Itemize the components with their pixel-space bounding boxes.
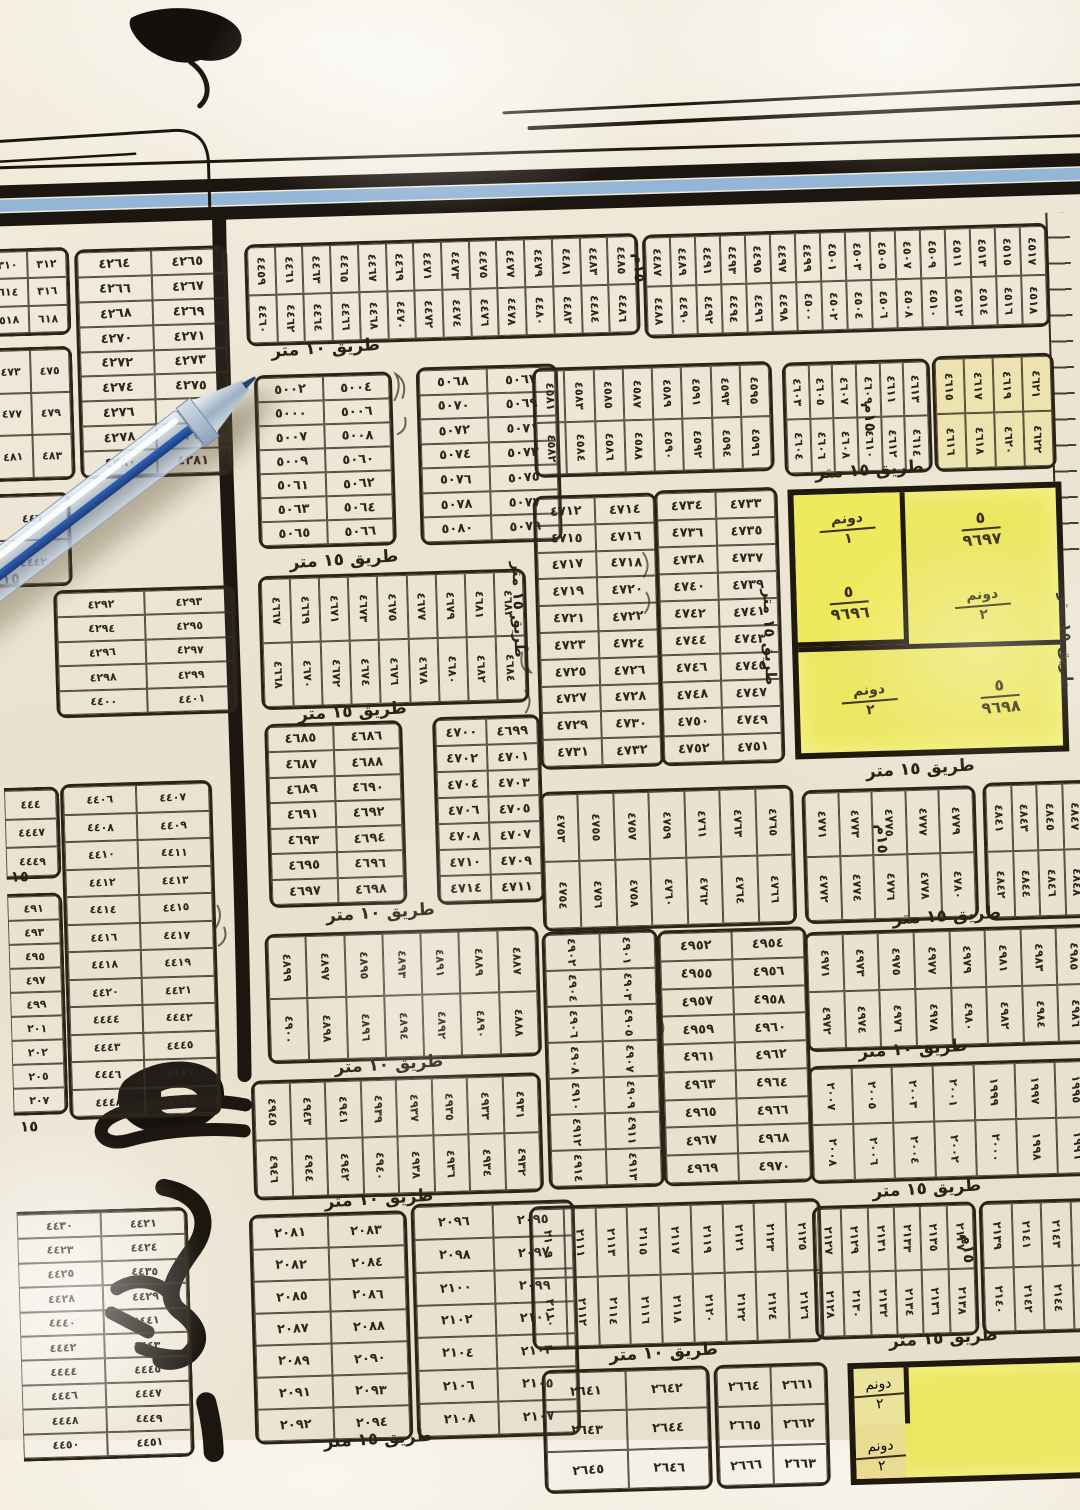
plot-number-text: ٤٧٠٣: [498, 775, 530, 790]
plot-number: ٤٢٧٤: [81, 375, 155, 402]
plot-number: ٤٧٤٠: [659, 573, 719, 602]
plot-number-text: ٤٦٧٠: [300, 660, 315, 688]
plot-number: ٤٥٩٠: [653, 419, 684, 472]
plot-number-text: ٢١٢٦: [797, 1291, 812, 1319]
plot-number: ٤٥١٨: [1021, 275, 1047, 325]
plot-number-text: ٥٠٠٩: [276, 453, 308, 469]
plot-number-text: ٤٩١٤: [572, 1154, 587, 1182]
plot-number-text: ٤٩٠٢: [565, 938, 580, 966]
plot-number-text: ٢١٠٨: [443, 1411, 475, 1427]
plot-number-text: ٢٠٨١: [274, 1224, 306, 1240]
plot-number: ٥٠٦٢: [326, 470, 393, 496]
plot-number-text: ١٩٩٦: [1070, 1131, 1080, 1159]
plot-number-text: ٢٦٦٤: [728, 1379, 760, 1395]
plot-number-text: ٤٩٥٥: [681, 967, 713, 982]
plot-number: ١٩٩٦: [1056, 1117, 1080, 1174]
plot-number: ٤٧١٤: [595, 496, 655, 525]
plot-number: ٥٠٧٦: [422, 467, 491, 494]
plot-number-text: ٤٩٦٣: [684, 1077, 716, 1093]
plot-number-text: ٤٦٧١: [327, 595, 342, 623]
plot-number: ٤٧٢٢: [598, 603, 658, 632]
plot-number-text: ٢٠٩٢: [280, 1416, 312, 1432]
plot-number: ٤٤٧٠: [387, 291, 416, 340]
plot-number: ٤٤٨٣: [579, 237, 608, 286]
plot-number: ٤٥٠٤: [846, 280, 872, 330]
plot-number-text: ٤٢٩٧: [176, 644, 203, 657]
plot-number: ٤٦٦٨: [263, 642, 294, 707]
plot-number: ٤٥١٢: [946, 277, 972, 327]
plot-number: ٤٤٨٤: [581, 285, 610, 334]
plot-number: ٤٨٤٨: [1064, 849, 1080, 916]
plot-number: ٤٤١٢: [65, 868, 139, 898]
plot-number-text: ٤٦٦٧: [269, 597, 284, 625]
plot-number: ٤٧٧٣: [838, 791, 873, 856]
plot-number: ٤٧٦٢: [686, 857, 723, 925]
plot-number: ٤٦٧٨: [408, 638, 439, 703]
plot-number-text: ٢٠٧: [29, 1094, 49, 1107]
plot-number: ٤٤٤٨: [22, 1407, 107, 1434]
plot-block: ٤٧٣٤٧٥٤٧٧٤٧٩٤٨١٤٨٣: [0, 346, 76, 482]
plot-number: ٤٨٤١: [985, 785, 1012, 852]
plot-number: ٤٧٥٠: [663, 708, 723, 737]
plot-number: ٤٢٦٨: [79, 300, 153, 327]
plot-number: ٤٦٠٣: [785, 365, 810, 420]
plot-number-text: ٥٠٨٠: [441, 521, 473, 537]
plot-number-text: ٤٨٩٧: [318, 952, 333, 980]
plot-number-text: ٤٨٩٣: [395, 950, 409, 978]
plot-number-text: ٤٦٦٩: [298, 596, 313, 624]
parcel-number-fraction: ٥ ٩٦٩٨: [979, 674, 1021, 719]
plot-number: ٤٧٠٥: [488, 795, 540, 823]
plot-number: ٤٤٩٠: [671, 285, 697, 335]
plot-number: ٥١٨: [0, 306, 29, 334]
plot-number: ٥٠٠٠: [258, 400, 325, 426]
plot-number: ٤٧١٨: [596, 549, 656, 578]
plot-number-text: ٤٧٥١: [736, 739, 769, 756]
plot-number: ٤٩٤٢: [326, 1137, 363, 1195]
plot-number-text: ٤٦٢١: [1030, 370, 1044, 398]
plot-block: ٤٤٥٩٤٤٦١٤٤٦٣٤٤٦٥٤٤٦٧٤٤٦٩٤٤٧١٤٤٧٣٤٤٧٥٤٤٧٧…: [244, 233, 641, 347]
plot-number-text: ٤٢٩٥: [175, 619, 202, 633]
plot-number: ٤٤٢٤: [101, 1234, 186, 1261]
plot-number-text: ٢٠٨٦: [352, 1287, 384, 1302]
plot-number: ٤٥٠١: [820, 232, 846, 282]
plot-number: ٤٧١٠: [439, 849, 491, 877]
plot-number-text: ٤٤٦٢: [284, 304, 298, 332]
plot-number: ٢٦٤٣: [546, 1410, 628, 1452]
plot-number-text: ٤٨٤٦: [1045, 869, 1060, 897]
plot-number: ٤٤٨٧: [645, 237, 671, 287]
plot-number-text: ٥٠٧٦: [440, 472, 472, 487]
plot-number-text: ٤٧٢١: [553, 611, 585, 626]
plot-number: ٤٢٦٦: [78, 275, 152, 302]
plot-number: ٥٠٦٤: [326, 494, 393, 520]
plot-number: ٤٩٠٣: [601, 968, 657, 1006]
parcel-number-fraction: ٥ ٩٦٩٦: [829, 580, 871, 625]
parcel-area-fraction: دونم ٢: [853, 1374, 907, 1426]
plot-number: ٤٧٦١: [684, 790, 721, 858]
plot-number-text: ٤٩٥٢: [680, 938, 712, 954]
plot-number: ٤٦٩٨: [338, 876, 405, 903]
plot-number: ٤٥١٧: [1020, 226, 1046, 276]
plot-number: ٤٩٥٦: [732, 957, 805, 987]
plot-number: ٤٥٨١: [535, 370, 566, 423]
plot-number: ٤٤٤٣: [104, 1332, 189, 1359]
plot-number-text: ٤٤٤٨: [51, 1414, 78, 1428]
plot-number-text: ٤٦١٢: [886, 429, 901, 457]
plot-number: ٢٦٦٢: [772, 1404, 827, 1445]
plot-number-text: ٤٢٧٠: [100, 330, 132, 346]
plot-number: ٤٤٩٣: [720, 235, 746, 285]
plot-number: ٤٨٤٤: [1013, 850, 1040, 917]
plot-number: ٢٠٨٨: [331, 1309, 408, 1343]
plot-number: ٥٠٠٧: [258, 424, 325, 450]
plot-number: ٣١٢: [27, 250, 67, 278]
plot-number: ٤٩٠٨: [548, 1041, 604, 1079]
plot-number: ٤٧١٤: [440, 875, 492, 903]
plot-block: ٢٦٤١٢٦٤٢٢٦٤٣٢٦٤٤٢٦٤٥٢٦٤٦: [541, 1365, 713, 1494]
plot-number-text: ٤٢٧٤: [102, 380, 134, 396]
plot-block: ٢١٣٩٢١٤١٢١٤٣٢١٤٥٢١٤٠٢١٤٢٢١٤٤٢١٤٦: [979, 1198, 1080, 1336]
plot-number-text: ٤٧٤٩: [736, 713, 768, 728]
plot-number: ٢١٠٠: [415, 1270, 495, 1305]
road-width-marker: ١٥م: [861, 402, 880, 432]
plot-number-text: ٢١٣٨: [955, 1287, 969, 1315]
plot-number-text: ٤٤٤: [20, 798, 41, 812]
plot-number-text: ٤٦٨٢: [474, 654, 489, 682]
plot-number-text: ٤٦٨١: [473, 591, 487, 619]
plot-number: ٤٧٢١: [539, 604, 599, 633]
plot-number: ٢١٤٠: [984, 1267, 1015, 1332]
parcel-area-fraction: دونم ٢: [840, 680, 899, 721]
plot-number-text: ٤٦٩٣: [288, 833, 320, 848]
plot-number-text: ٤٩٣٧: [407, 1093, 422, 1121]
plot-number-text: ٤٤٤٢: [49, 1341, 76, 1355]
plot-number-text: ٤٧٤٨: [676, 686, 709, 703]
plot-number: ٤٢٩٣: [144, 588, 233, 615]
plot-number: ٤٦٩٦: [337, 850, 404, 877]
plot-number-text: ٢١٣٢: [876, 1289, 891, 1317]
plot-number-text: ٤٧٠٨: [448, 829, 480, 844]
plot-number: ٢٠٨٦: [330, 1277, 407, 1311]
plot-number-text: ٤٤٤٨: [95, 1095, 122, 1109]
plot-number: ٤٩٠٢: [545, 933, 601, 971]
plot-number: ٤٤١٧: [140, 920, 214, 950]
plot-number-text: ٤٤٤٩: [168, 1094, 195, 1107]
plot-number: ٤٩٣٧: [396, 1078, 433, 1136]
plot-number-text: ٤٩٦٩: [686, 1160, 718, 1176]
plot-number-text: ٤٧٧٣: [848, 809, 863, 837]
plot-number: ١٩٩٥: [1055, 1061, 1080, 1118]
highlighted-parcel-9696: دونم ١ ٥ ٩٦٩٦: [794, 492, 909, 647]
plot-number-text: ٤٤٨٦: [616, 294, 630, 322]
plot-number: ٥٠٠٨: [324, 422, 391, 448]
plot-number-text: ٤٤٥٠: [52, 1438, 79, 1452]
plot-number: ٤٤٤٧: [5, 818, 58, 848]
plot-number: ٤٦٨٦: [333, 723, 400, 750]
plot-number-text: ٢١٢٨: [823, 1290, 838, 1318]
plot-number-text: ٤٦٨٧: [285, 757, 317, 772]
plot-number: ٢٦٤٦: [628, 1447, 710, 1489]
plot-number: ٤٩٠٧: [603, 1040, 659, 1078]
plot-number: ٤٨٩٦: [346, 996, 386, 1059]
plot-number-text: ٤٧٣٥: [730, 523, 762, 539]
plot-number: ٤٧٧١: [804, 792, 839, 857]
plot-number-text: ٤٤٢٠: [92, 985, 120, 1000]
plot-number: ٤٤٩٥: [745, 234, 771, 284]
plot-number-text: ٤٩١٣: [627, 1152, 642, 1180]
plot-number: ٤٥١٥: [995, 227, 1021, 277]
plot-number: ٤٤٤٧: [106, 1381, 191, 1408]
plot-number-text: ٤٤١٦: [90, 930, 117, 944]
plot-number-text: ٥٠٠٧: [275, 429, 308, 446]
plot-number-text: ٤٧١٥: [550, 531, 582, 546]
plot-number: ٢١١١: [563, 1208, 597, 1278]
plot-number: ٤٧١٧: [537, 551, 597, 580]
plot-number-text: ٤٩٣٢: [515, 1147, 529, 1175]
plot-number-text: ٤٩٧٥: [889, 947, 904, 975]
plot-number: ٤٥٠٦: [871, 279, 897, 329]
plot-number: ٤٧٠٢: [436, 745, 488, 773]
plot-number-text: ٤٦١٧: [971, 371, 986, 399]
plot-number-text: ٤٨٤٧: [1068, 802, 1080, 830]
plot-number: ٥٠٧٨: [422, 491, 491, 518]
plot-number: ٤٩٥٧: [661, 987, 734, 1017]
plot-number: ٢١١٧: [659, 1205, 693, 1275]
plot-number-text: ٢١٣٩: [990, 1221, 1005, 1249]
plot-number-text: ٤٦١٨: [973, 426, 988, 454]
plot-number-text: ٤٧٤٢: [674, 606, 706, 621]
plot-number: ٤٤١٥: [139, 893, 213, 923]
plot-number: ٢٠٩٨: [415, 1237, 495, 1272]
plot-number: ٤٧٦٦: [757, 855, 794, 923]
plot-number-text: ٤٧٥٨: [626, 879, 641, 907]
plot-number-text: ٤٧١٨: [610, 556, 642, 571]
plot-number-text: ٤٩٠٦: [567, 1010, 582, 1038]
plot-number: ٤٧٢٥: [540, 658, 600, 687]
plot-number: ٤٦٩٣: [270, 827, 337, 854]
plot-number: ٤٤١٨: [68, 950, 142, 980]
plot-number-text: ٤٧١٤: [449, 880, 481, 896]
plot-number-text: ٤٤٠٩: [160, 818, 187, 832]
plot-number-text: ٥٠٠٤: [340, 379, 372, 395]
plot-number-text: ٢٠٠٨: [826, 1138, 840, 1166]
plot-number-text: ٤٦٧٢: [329, 659, 343, 687]
plot-number-text: ٤٢٦٤: [98, 256, 130, 272]
plot-number-text: ٢٠٨٧: [277, 1320, 309, 1336]
plot-number-text: ٤٩٤١: [336, 1095, 351, 1123]
plot-number-text: ٢١١٠: [543, 1298, 558, 1326]
plot-number: ٤٤٧٢: [415, 290, 444, 339]
plot-number: ٢٠٥: [12, 1063, 65, 1089]
plot-number: ٤٩٦٣: [664, 1070, 737, 1100]
plot-number-text: ٤٨٩٦: [358, 1013, 373, 1041]
plot-number-text: ٤٥١٨: [1027, 286, 1041, 314]
plot-number: ٤٦٧٧: [406, 574, 437, 639]
plot-number: ٤٤٢٩: [103, 1283, 188, 1310]
plot-number: ٢١٤٥: [1070, 1201, 1080, 1266]
plot-number: ٤٧٧٩: [939, 788, 974, 853]
plot-number-text: ٤٤٧٧: [503, 249, 518, 277]
plot-number: ٤٥٨٨: [624, 420, 655, 473]
plot-number: ٢٠٨٥: [254, 1280, 331, 1314]
plot-number: ١٩٩٧: [1014, 1062, 1056, 1119]
plot-number-text: ٤٥٨٨: [632, 432, 646, 460]
plot-number: ٤٦٩٠: [335, 774, 402, 801]
plot-number-text: ٤٦٠٥: [814, 377, 829, 405]
plot-number: ٤٧٣١: [543, 738, 603, 767]
plot-number: ٤٥٨٢: [536, 422, 567, 475]
corner-ink-blob: [129, 6, 242, 64]
plot-number: ٤٤٥٩: [247, 247, 276, 296]
plot-number: ٤٧٠٤: [437, 771, 489, 799]
plot-block: ٤٤٤٤٤٤٧٤٤٤٩: [4, 786, 62, 880]
plot-number: ٤٤١٦: [67, 922, 141, 952]
plot-number-text: ٤٦١٦: [944, 427, 959, 455]
plot-number-text: ٢١١٤: [607, 1297, 621, 1325]
plot-number: ٤٧٢٧: [541, 685, 601, 714]
plot-number-text: ٤٦١٩: [1000, 370, 1015, 398]
plot-number-text: ٥٠٦٥: [278, 525, 310, 541]
plot-number-text: ٢٦٦٥: [729, 1419, 761, 1434]
plot-number-text: ٤٢٩٣: [175, 594, 202, 608]
plot-number-text: ٤٤٢١: [129, 1216, 156, 1230]
plot-number-text: ٢٦٤٥: [572, 1462, 605, 1479]
plot-number: ٤٦٧٥: [377, 575, 408, 640]
road-width-marker: ١٥: [20, 1117, 39, 1136]
plot-number-text: ٤٦٧٨: [416, 656, 431, 684]
plot-number-text: ٤٧٣٢: [615, 742, 648, 759]
plot-number-text: ٤٤٦٦: [339, 302, 354, 330]
plot-number-text: ٤٧١١: [500, 879, 532, 895]
plot-number: ٤٤١٤: [66, 895, 140, 925]
plot-number-text: ٥١٨: [0, 313, 20, 327]
plot-number: ٢٠٠١: [933, 1064, 975, 1121]
plot-number-text: ٢١٣٣: [901, 1224, 915, 1252]
plot-number-text: ٤٤٤٤: [50, 1365, 77, 1379]
plot-number: ٤٢٩٨: [58, 664, 147, 691]
plot-number: ٢٠٠٨: [812, 1124, 854, 1181]
plot-number-text: ٤٤٥١: [136, 1435, 164, 1450]
plot-number: ٢٠١: [11, 1015, 64, 1041]
plot-number: ٢٠٩١: [257, 1375, 334, 1409]
plot-number-text: ٢٦٤٢: [650, 1381, 682, 1397]
plot-number-text: ٤٤٨٢: [560, 296, 575, 324]
plot-number-text: ٤٦٠٩: [861, 376, 875, 404]
plot-number-text: ٤٩٥٩: [682, 1021, 714, 1037]
plot-number: ٤٩٥٩: [662, 1015, 735, 1045]
plot-number: ٤٢٩٥: [145, 612, 234, 639]
plot-number-text: ٤٤٩٨: [777, 293, 792, 321]
plot-number-text: ٤٩٧٧: [925, 946, 939, 974]
plot-number-text: ٢٦٦١: [782, 1377, 814, 1393]
plot-number-text: ٤٤٥٩: [254, 257, 269, 285]
plot-number: ٤٦٩٥: [271, 852, 338, 879]
plot-number-text: ٤٧٥٧: [624, 812, 639, 840]
plot-number-text: ٤٤٤٧: [18, 826, 45, 840]
plot-number: ٥٠٦٨: [419, 368, 488, 395]
plot-number-text: ٤٤٤٧: [134, 1387, 161, 1401]
plot-number: ٤٩٧٥: [878, 932, 915, 990]
plot-number-text: ٤٥٩٠: [661, 431, 676, 459]
plot-number-text: ٢١١٦: [638, 1295, 653, 1323]
plot-number-text: ٤٢٩٦: [88, 646, 116, 661]
plot-number-text: ٢٠٨٨: [353, 1318, 385, 1334]
plot-block: ٢١٠٩٢١١١٢١١٣٢١١٥٢١١٧٢١١٩٢١٢١٢١٢٣٢١٢٥٢١١٠…: [529, 1198, 825, 1351]
plot-number: ٤٧٢٤: [599, 629, 659, 658]
plot-number: ٤٧١١: [491, 873, 543, 901]
plot-number-text: ٤٨٨٩: [471, 948, 486, 976]
plot-number-text: ٤٥٩٦: [749, 428, 763, 456]
plot-number: ٤٧٥٧: [613, 792, 650, 860]
plot-number-text: ٢١١٣: [605, 1227, 620, 1255]
plot-block: ٤٧٥٣٤٧٥٥٤٧٥٧٤٧٥٩٤٧٦١٤٧٦٣٤٧٦٥٤٧٥٤٤٧٥٦٤٧٥٨…: [539, 785, 797, 932]
plot-number: ٤٥١٦: [996, 276, 1022, 326]
plot-number: ٤٦٧٤: [350, 640, 381, 705]
plot-number: ٤٢٦٩: [152, 298, 226, 325]
plot-number: ٤٧٢٣: [540, 631, 600, 660]
plot-number-text: ٤٧٤٦: [675, 660, 707, 676]
plot-number-text: ٤٧٥٢: [677, 741, 709, 757]
plot-number-text: ٤٦٨٠: [446, 656, 460, 684]
plot-number: ٤٩٣: [8, 919, 61, 945]
plot-number-text: ٤٤٠٦: [86, 793, 113, 807]
plot-number: ٤٨٩٢: [422, 994, 462, 1057]
plot-number: ٤٨٩٣: [382, 933, 422, 996]
plot-number: ٤٦٢٢: [1023, 411, 1054, 467]
plot-number-text: ٤٤٩٩: [801, 243, 816, 271]
plot-number-text: ٤٢٦٦: [99, 281, 131, 296]
plot-number-text: ٥٠٦١: [277, 478, 309, 493]
plot-number-text: ٤٤٤٤: [93, 1013, 120, 1027]
plot-number: ٤٩٤٥: [254, 1083, 291, 1141]
plot-number-text: ٤٩٠٧: [624, 1044, 638, 1072]
plot-number: ٤٨٤٦: [1038, 850, 1065, 917]
plot-number-text: ٤٧٦٣: [731, 808, 746, 836]
plot-number-text: ٤٦٧٥: [385, 593, 400, 621]
plot-number: ٢١٣٣: [894, 1206, 922, 1271]
plot-number-text: ٥٠٦٦: [344, 523, 376, 539]
plot-number-text: ٥٠٧٨: [440, 496, 472, 512]
plot-block: ٤٦٦٧٤٦٦٩٤٦٧١٤٦٧٣٤٦٧٥٤٦٧٧٤٦٧٩٤٦٨١٤٦٨٣٤٦٦٨…: [258, 568, 530, 710]
plot-number: ٤٧٤٨: [662, 681, 722, 710]
plot-number: ٢١٢١: [722, 1203, 756, 1273]
plot-number-text: ٤٨٩٩: [280, 953, 295, 981]
plot-number-text: ٤٥١٥: [1001, 237, 1016, 265]
plot-number: ٢١١٣: [595, 1207, 629, 1277]
plot-number-text: ٤٧١٩: [552, 584, 584, 600]
plot-number-text: ٢١١١: [573, 1228, 588, 1256]
plot-number-text: ٤٩٦٧: [685, 1132, 718, 1149]
plot-number-text: ٢١١٨: [670, 1294, 685, 1322]
plot-number: ٤٩٠٦: [547, 1005, 603, 1043]
plot-number-text: ٤٤١٤: [90, 903, 117, 916]
plot-number-text: ٤٧٨٠: [951, 870, 966, 898]
plot-number-text: ٤٤٧٩: [531, 249, 546, 277]
plot-number-text: ٢١٢٩: [848, 1226, 863, 1254]
plot-number-text: ٦١٨: [38, 312, 58, 325]
plot-number-text: ٤٦٢٠: [1002, 425, 1017, 453]
plot-number-text: ٤٤٤١: [132, 1313, 160, 1328]
plot-number-text: ٤٨٨٧: [510, 947, 525, 975]
plot-number: ٢١٢٨: [817, 1272, 845, 1337]
plot-number: ٤٧٩: [31, 391, 71, 435]
plot-number: ٤٩٥٨: [733, 985, 806, 1015]
plot-number: ٤٢٧٠: [79, 325, 153, 352]
plot-number: ٤٥٠٧: [895, 230, 921, 280]
plot-number-text: ٤٨٤٨: [1070, 868, 1080, 896]
plot-number-text: ٢١٠٢: [440, 1313, 472, 1329]
